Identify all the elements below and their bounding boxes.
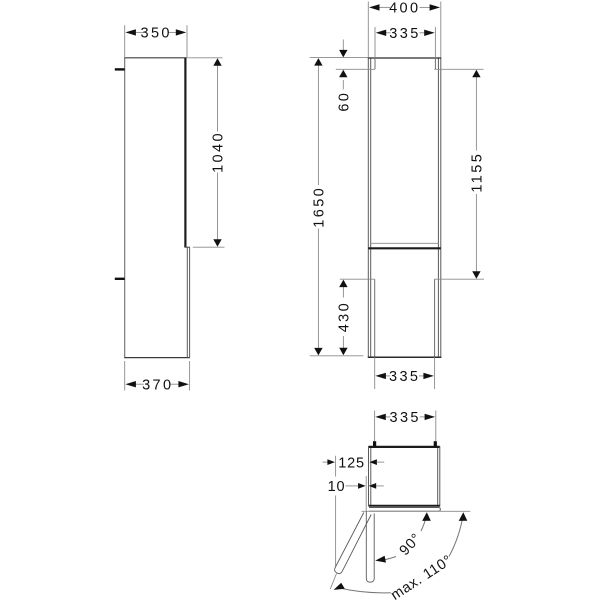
svg-text:60: 60 (336, 91, 352, 112)
svg-text:125: 125 (338, 455, 365, 471)
svg-text:400: 400 (389, 1, 420, 17)
svg-text:335: 335 (389, 26, 420, 42)
svg-text:335: 335 (389, 410, 420, 426)
svg-text:1040: 1040 (211, 131, 227, 173)
svg-text:1155: 1155 (470, 152, 486, 193)
svg-text:10: 10 (328, 479, 346, 495)
svg-text:430: 430 (337, 301, 353, 332)
svg-text:350: 350 (140, 26, 171, 42)
svg-text:370: 370 (142, 377, 173, 393)
svg-text:335: 335 (389, 369, 420, 385)
svg-text:1650: 1650 (312, 186, 328, 228)
